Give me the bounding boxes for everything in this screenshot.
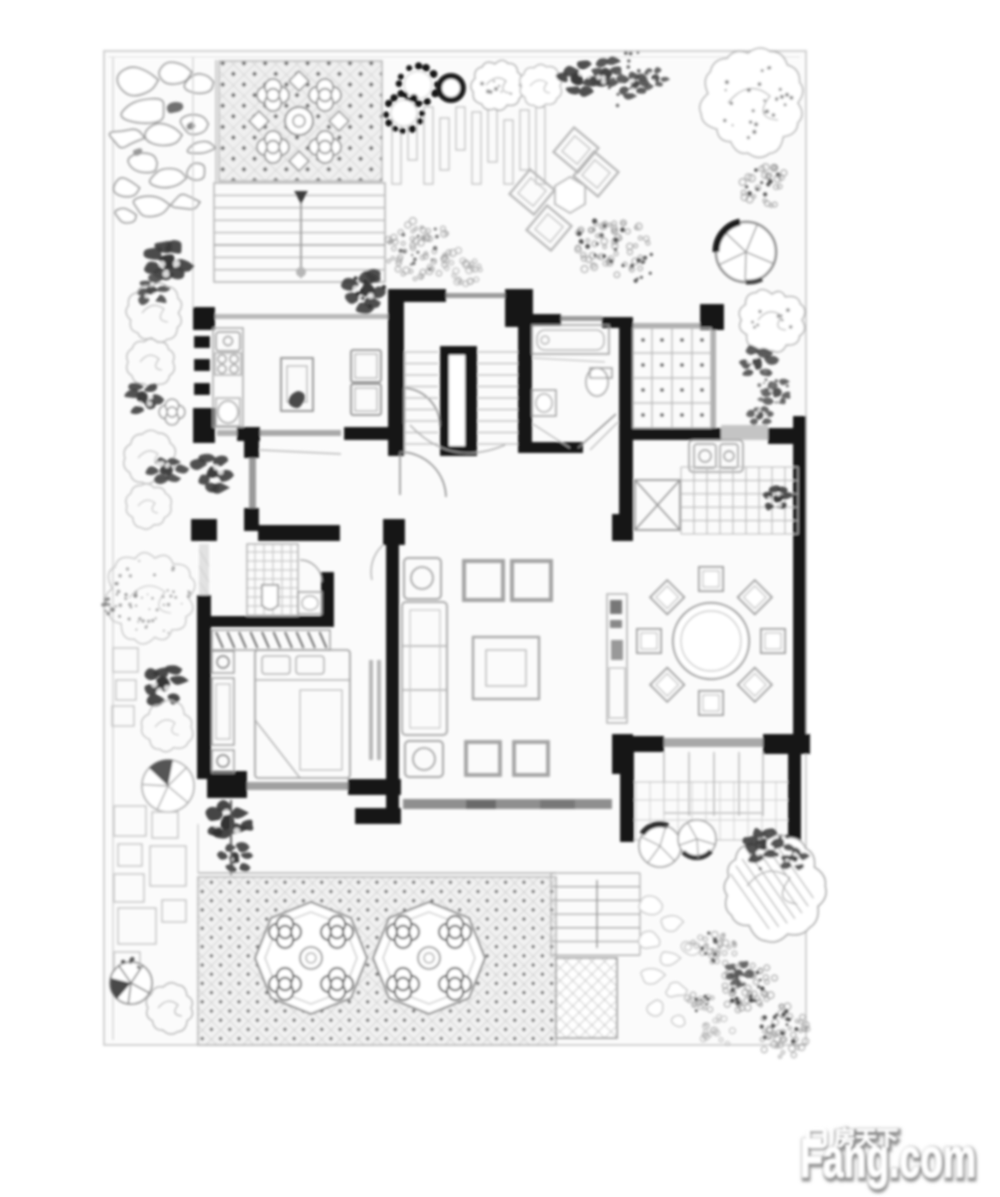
svg-text:Fang.com: Fang.com — [800, 1126, 976, 1189]
